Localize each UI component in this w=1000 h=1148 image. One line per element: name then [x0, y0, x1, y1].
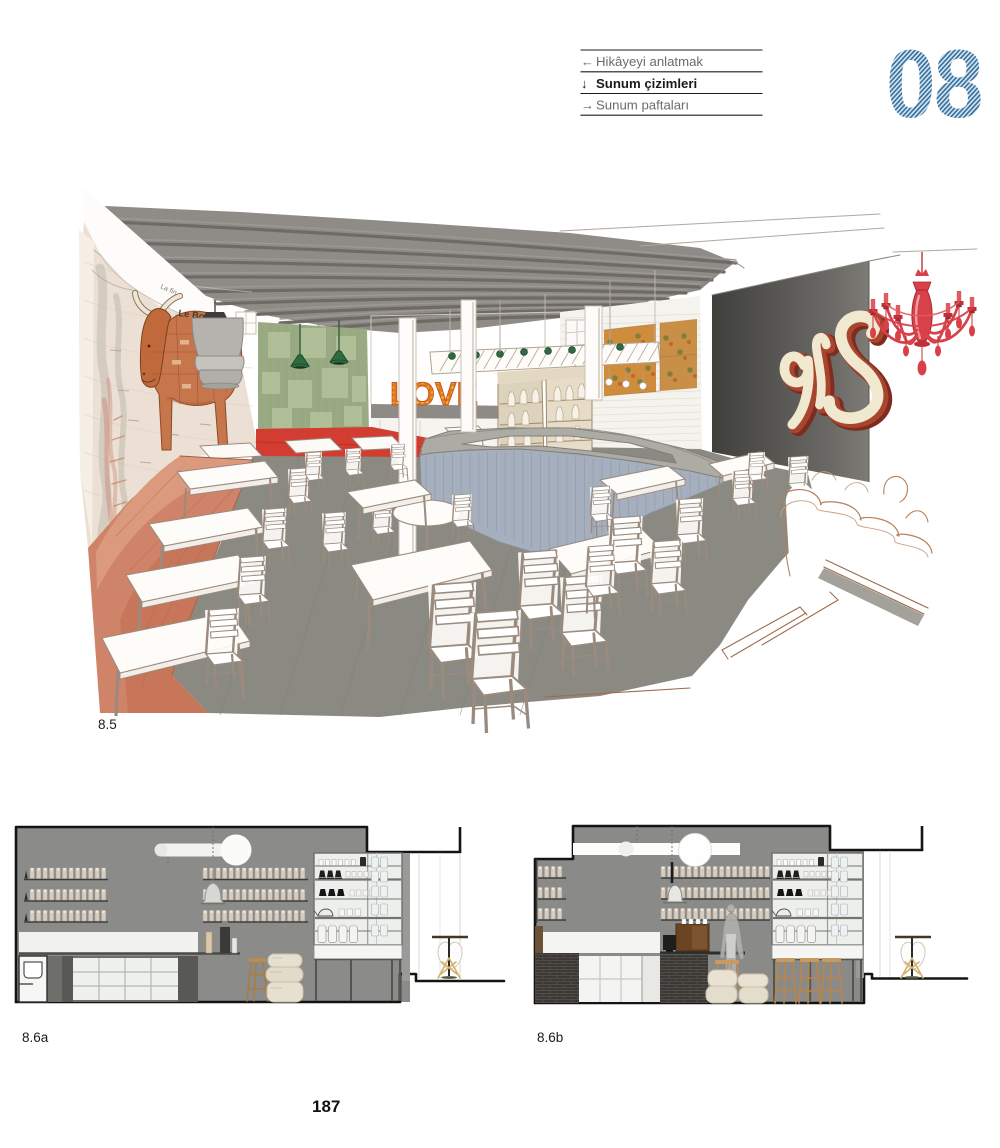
svg-text:08: 08 [886, 30, 982, 138]
svg-text:8.5: 8.5 [98, 717, 117, 732]
svg-text:↓: ↓ [581, 76, 588, 91]
svg-text:8.6b: 8.6b [537, 1030, 563, 1045]
svg-text:Hikâyeyi anlatmak: Hikâyeyi anlatmak [596, 54, 703, 69]
svg-text:→: → [581, 98, 594, 113]
svg-text:8.6a: 8.6a [22, 1030, 49, 1045]
svg-text:Sunum çizimleri: Sunum çizimleri [596, 76, 697, 91]
svg-text:←: ← [581, 54, 594, 69]
svg-text:187: 187 [312, 1097, 340, 1116]
svg-text:Sunum paftaları: Sunum paftaları [596, 98, 689, 113]
